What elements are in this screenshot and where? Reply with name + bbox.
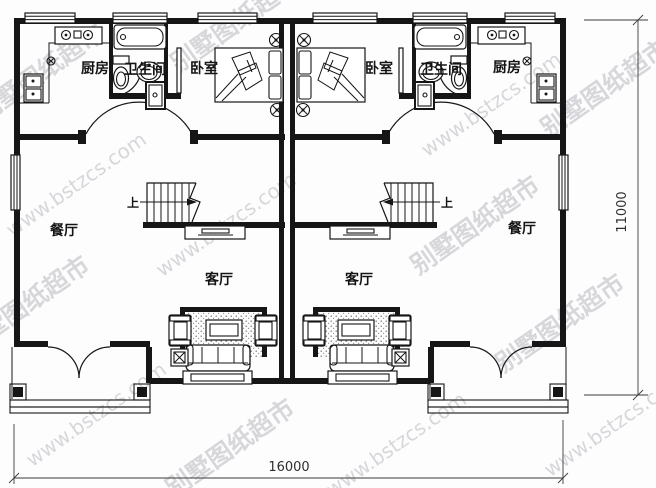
stove-icon xyxy=(55,27,102,44)
armchair-icon xyxy=(169,315,191,346)
watermark-text: www.bstzcs.com xyxy=(321,387,470,488)
coffee-table-icon xyxy=(206,320,242,340)
bedroom-door-leaf-right xyxy=(399,48,403,93)
armchair-icon xyxy=(389,315,411,346)
sofa-icon xyxy=(186,345,250,371)
sofa-icon xyxy=(330,345,394,371)
stairs-up-label: 上 xyxy=(127,195,139,210)
stairs-left: 上 xyxy=(127,183,200,222)
room-label-dining-right: 餐厅 xyxy=(507,220,536,237)
sofa-set-left: 客厅 xyxy=(169,271,277,384)
entry-door-left xyxy=(48,347,79,378)
window-icon xyxy=(313,13,377,23)
shower-box-icon xyxy=(415,82,434,109)
window-icon xyxy=(505,13,555,23)
room-label-kitchen-left: 厨房 xyxy=(81,60,109,77)
window-icon xyxy=(25,13,75,23)
cabinet-left xyxy=(185,226,245,239)
armchair-icon xyxy=(303,315,325,346)
window-icon xyxy=(198,13,257,23)
window-icon xyxy=(559,155,568,210)
bed-icon xyxy=(297,48,365,102)
side-table-icon xyxy=(171,349,188,366)
bed-icon xyxy=(215,48,283,102)
coffee-table-icon xyxy=(338,320,374,340)
stairs-right: 上 xyxy=(380,183,453,222)
room-label-bedroom-left: 卧室 xyxy=(190,60,218,77)
bathtub-icon xyxy=(414,25,466,49)
dimension-width-label: 16000 xyxy=(268,460,309,475)
side-table-icon xyxy=(392,349,409,366)
bedroom-right: 卧室 xyxy=(297,34,394,117)
nightstand-icon xyxy=(297,104,310,117)
room-label-dining-left: 餐厅 xyxy=(49,222,78,239)
shower-box-icon xyxy=(146,82,165,109)
bathtub-icon xyxy=(114,25,166,49)
watermark-text: 别墅图纸超市 xyxy=(490,268,630,378)
stove-icon xyxy=(478,27,525,44)
stairs-up-arrow: 上 xyxy=(127,195,197,210)
stairs-up-label: 上 xyxy=(441,195,453,210)
window-icon xyxy=(11,155,20,210)
hall-arch-left xyxy=(86,102,192,134)
bedroom-door-leaf-left xyxy=(177,48,181,93)
cabinet-right xyxy=(330,226,390,239)
floor-plan-svg: 别墅图纸超市 www.bstzcs.com 别墅图纸超市 www.bstzcs.… xyxy=(0,0,656,488)
room-label-living-left: 客厅 xyxy=(204,271,233,288)
sink-icon xyxy=(537,74,556,102)
room-label-bedroom-right: 卧室 xyxy=(365,60,393,77)
room-label-kitchen-right: 厨房 xyxy=(493,59,521,76)
room-label-living-right: 客厅 xyxy=(344,271,373,288)
entry-steps xyxy=(328,371,397,384)
stairs-up-arrow: 上 xyxy=(383,195,453,210)
room-label-bathroom-left: 卫生间 xyxy=(124,61,166,78)
armchair-icon xyxy=(255,315,277,346)
window-icon xyxy=(113,13,167,23)
dimension-height-label: 11000 xyxy=(615,191,630,232)
entry-steps xyxy=(183,371,252,384)
nightstand-icon xyxy=(298,34,311,47)
room-label-bathroom-right: 卫生间 xyxy=(420,61,462,78)
sofa-set-right: 客厅 xyxy=(303,271,411,384)
sink-icon xyxy=(24,74,43,102)
floor-plan: 别墅图纸超市 www.bstzcs.com 别墅图纸超市 www.bstzcs.… xyxy=(0,0,656,488)
window-icon xyxy=(413,13,467,23)
entry-door-left xyxy=(79,347,110,378)
